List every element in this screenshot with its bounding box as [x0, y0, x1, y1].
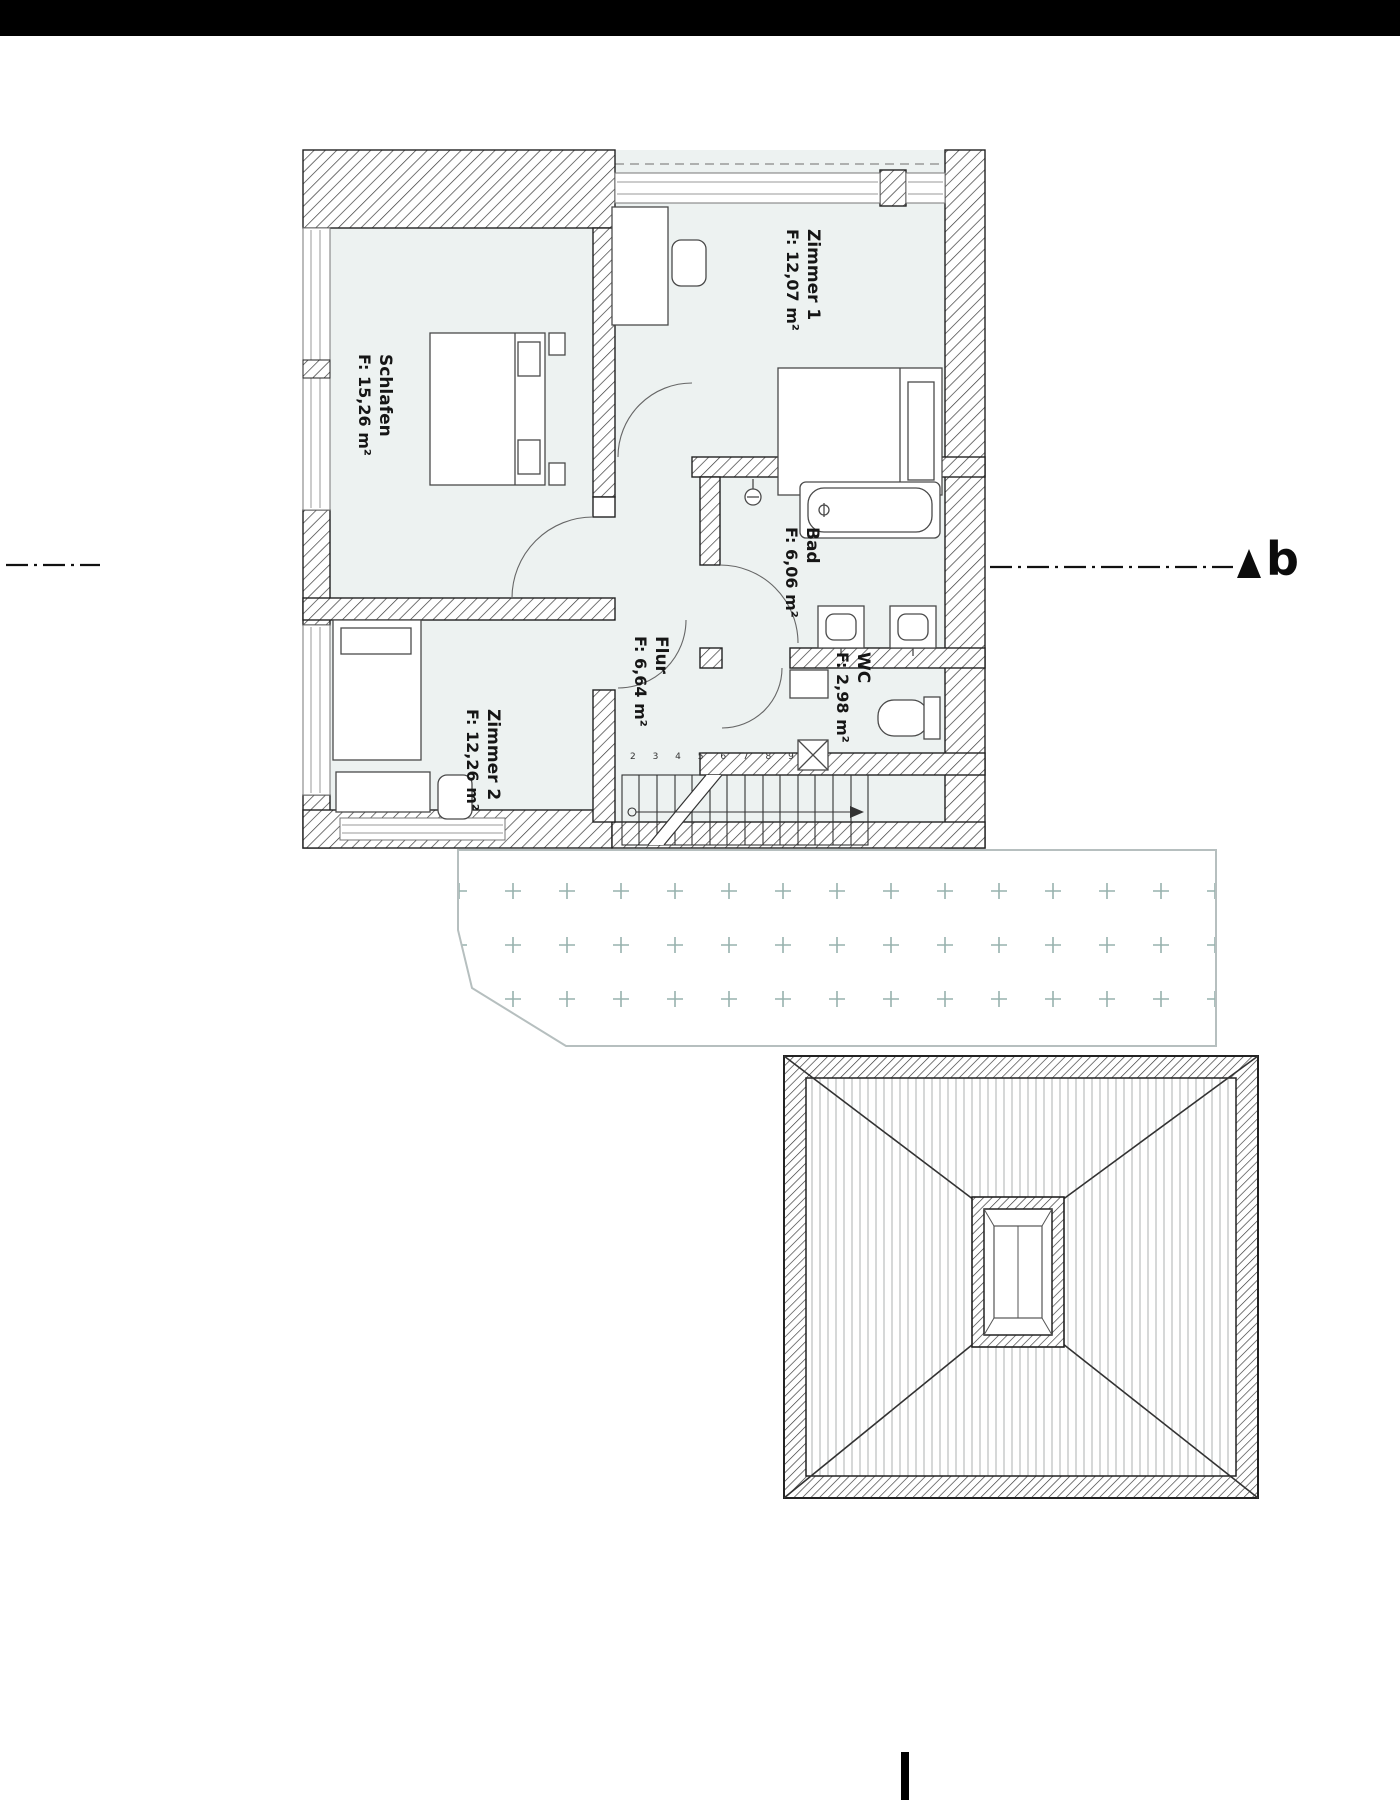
wall-divider-lower	[593, 690, 615, 822]
room-label-zimmer2: Zimmer 2 F: 12,26 m²	[460, 709, 504, 829]
room-name: WC	[852, 652, 874, 772]
section-marker-label: b	[1266, 536, 1299, 582]
bed-zimmer1	[778, 368, 942, 495]
room-name: Schlafen	[374, 354, 396, 474]
top-black-bar	[0, 0, 1400, 36]
bottom-tick-mark	[901, 1752, 909, 1800]
wall-schlafen-zimmer2	[303, 598, 615, 620]
wall-top-left	[303, 150, 615, 228]
wall-window-pier	[880, 170, 906, 206]
room-name: Flur	[650, 636, 672, 756]
door-jamb-cap	[593, 497, 615, 517]
stair-step-numbers: 2 3 4 5 6 7 8 9	[630, 752, 850, 762]
wall-bad-left	[700, 477, 720, 565]
wall-right	[945, 150, 985, 848]
desk-zimmer2	[336, 772, 472, 819]
wall-wc-top	[790, 648, 985, 668]
window-left-zimmer2	[303, 625, 330, 795]
floor-plan-drawing	[0, 0, 1400, 1800]
room-label-bad: Bad F: 6,06 m²	[779, 527, 823, 647]
roof-skylight	[972, 1197, 1064, 1347]
room-area: F: 12,26 m²	[461, 709, 482, 829]
window-top-zimmer1	[615, 173, 880, 203]
room-name: Zimmer 2	[482, 709, 504, 829]
window-left-schlafen	[303, 228, 330, 510]
room-area: F: 15,26 m²	[353, 354, 374, 474]
window-top-right	[906, 173, 945, 203]
toilet	[878, 697, 940, 739]
room-label-flur: Flur F: 6,64 m²	[628, 636, 672, 756]
hip-roof	[784, 1056, 1258, 1498]
room-area: F: 6,06 m²	[780, 527, 801, 647]
washbasin-2	[890, 606, 936, 656]
wc-sink	[790, 670, 828, 698]
floor-plan-page: Zimmer 1 F: 12,07 m² Schlafen F: 15,26 m…	[0, 0, 1400, 1800]
bed-zimmer2	[333, 620, 421, 760]
bed-schlafen	[430, 333, 565, 485]
room-label-schlafen: Schlafen F: 15,26 m²	[352, 354, 396, 474]
washbasin-1	[818, 606, 864, 656]
room-area: F: 12,07 m²	[781, 229, 802, 349]
room-name: Zimmer 1	[802, 229, 824, 349]
terrace	[458, 850, 1216, 1046]
room-label-zimmer1: Zimmer 1 F: 12,07 m²	[780, 229, 824, 349]
room-name: Bad	[801, 527, 823, 647]
wall-wc-top-stub	[700, 648, 722, 668]
room-area: F: 6,64 m²	[629, 636, 650, 756]
